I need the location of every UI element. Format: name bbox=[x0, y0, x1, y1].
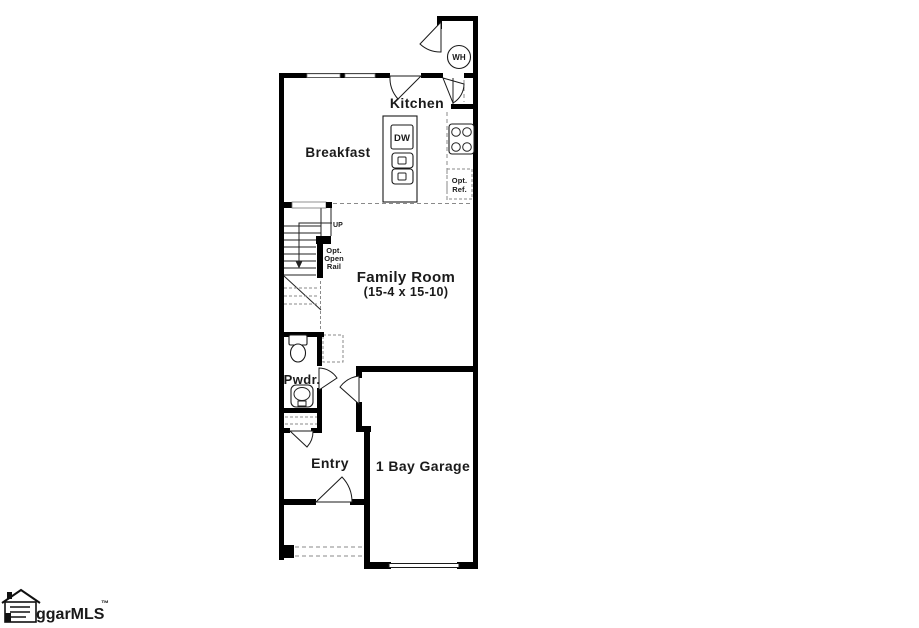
entry-label: Entry bbox=[311, 455, 349, 471]
mls-house-icon bbox=[2, 590, 40, 622]
garage-overhead-door bbox=[389, 564, 459, 568]
garage-bottom-wall-left bbox=[364, 562, 391, 569]
dishwasher-label: DW bbox=[394, 133, 410, 144]
right-exterior-wall bbox=[473, 16, 478, 569]
stair-opening-left-cap bbox=[281, 202, 292, 208]
breakfast-label: Breakfast bbox=[305, 145, 370, 160]
porch-column bbox=[281, 545, 294, 558]
front-door-swing bbox=[316, 477, 352, 502]
coat-closet-shelf-dashed bbox=[285, 417, 317, 424]
garage-top-wall bbox=[356, 366, 478, 372]
stairs-up-label: UP bbox=[333, 222, 343, 229]
family-room-dimensions: (15-4 x 15-10) bbox=[364, 285, 449, 299]
wh-closet-door-swing bbox=[420, 22, 441, 52]
garage-entry-door-swing bbox=[340, 376, 359, 404]
powder-door-swing bbox=[319, 368, 337, 390]
powder-right-wall-upper bbox=[317, 332, 322, 366]
top-wall-mid bbox=[421, 73, 443, 78]
wh-closet-top-wall bbox=[437, 16, 478, 21]
stair-opening-rail-bar bbox=[292, 202, 326, 208]
stair-opening-right-cap bbox=[326, 202, 332, 208]
garage-label: 1 Bay Garage bbox=[376, 458, 470, 474]
sink-basin-top bbox=[392, 153, 413, 168]
watermark-trademark: ™ bbox=[101, 599, 109, 608]
front-wall-right bbox=[350, 499, 370, 505]
watermark-brand: ggarMLS bbox=[36, 606, 105, 623]
water-heater-label: WH bbox=[452, 53, 466, 62]
stair-newel bbox=[316, 236, 331, 244]
stair-treads bbox=[284, 226, 321, 275]
left-exterior-wall bbox=[279, 73, 284, 560]
opt-rail-label-line3: Rail bbox=[327, 262, 341, 271]
powder-bottom-wall bbox=[281, 408, 322, 413]
garage-bottom-wall-right bbox=[457, 562, 478, 569]
watermark: ggarMLS ™ bbox=[2, 590, 109, 623]
up-arrowhead-icon bbox=[296, 261, 303, 269]
toilet-bowl bbox=[291, 344, 306, 362]
porch-edge-dashed bbox=[295, 547, 365, 556]
stair-rail bbox=[317, 244, 323, 278]
understair-dashed-treads bbox=[284, 281, 321, 331]
window bbox=[345, 74, 375, 78]
powder-label: Pwdr. bbox=[284, 372, 321, 387]
family-room-label: Family Room bbox=[357, 269, 456, 286]
opt-ref-label-line2: Ref. bbox=[452, 185, 467, 194]
stair-stringers bbox=[321, 208, 331, 236]
coat-closet-door-swing bbox=[290, 431, 313, 447]
front-wall-left bbox=[279, 499, 316, 505]
opt-ref-label-line1: Opt. bbox=[452, 176, 467, 185]
sink-basin-bottom bbox=[392, 169, 413, 184]
understair-dashed-box bbox=[323, 335, 343, 362]
stair-break-line bbox=[284, 276, 321, 310]
pantry-nook-wall bbox=[451, 104, 475, 109]
garage-left-wall-mid bbox=[356, 402, 362, 428]
window bbox=[307, 74, 340, 78]
coat-closet-bottom-left bbox=[281, 428, 290, 433]
floor-plan-drawing: Kitchen Breakfast Family Room (15-4 x 15… bbox=[0, 0, 919, 628]
garage-left-wall-lower bbox=[364, 426, 370, 569]
floor-plan-image: Kitchen Breakfast Family Room (15-4 x 15… bbox=[0, 0, 919, 628]
stairs bbox=[281, 202, 332, 331]
kitchen-label: Kitchen bbox=[390, 95, 444, 111]
powder-fixtures bbox=[289, 335, 313, 407]
